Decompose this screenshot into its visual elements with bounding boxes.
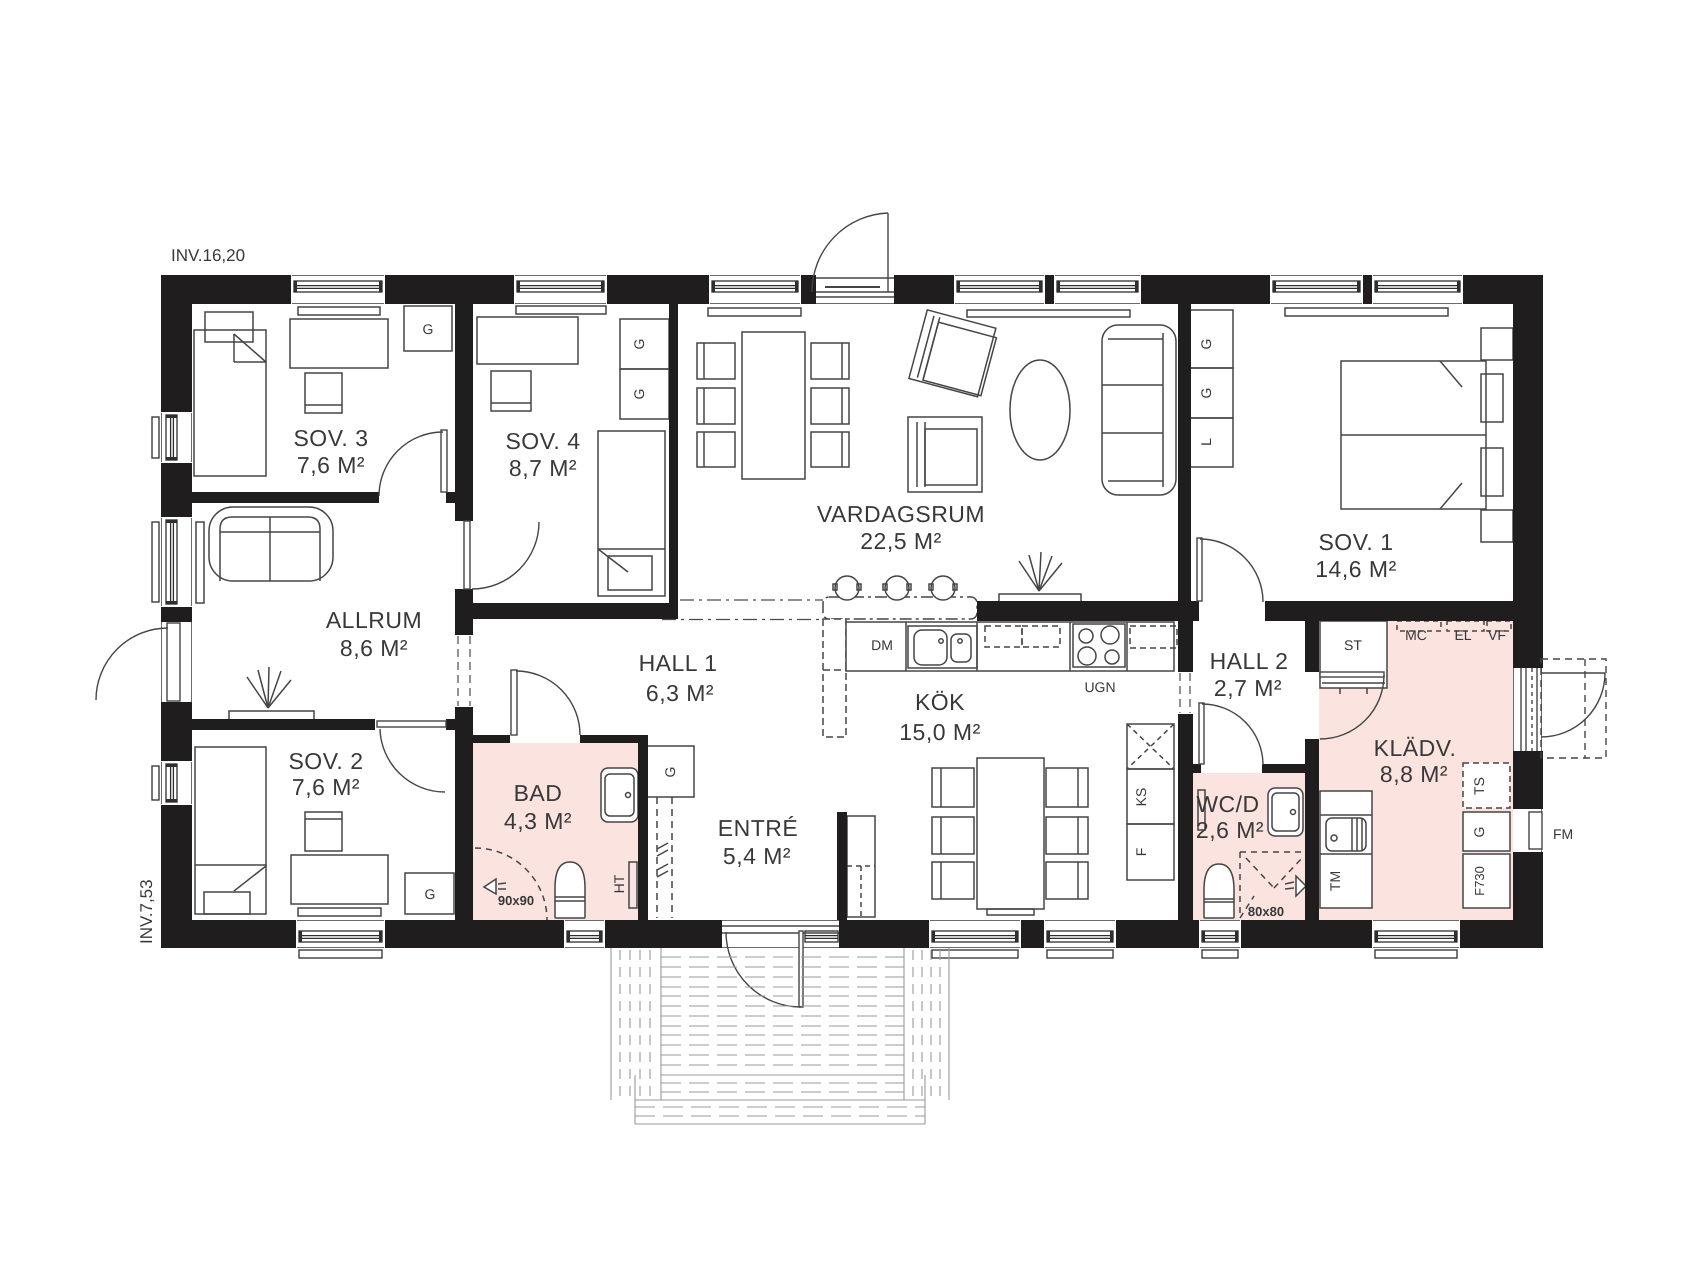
svg-text:8,7 M²: 8,7 M² (509, 455, 577, 481)
svg-text:8,8 M²: 8,8 M² (1380, 761, 1448, 787)
svg-text:MC: MC (1405, 627, 1427, 643)
svg-text:G: G (423, 321, 434, 337)
svg-text:22,5 M²: 22,5 M² (860, 528, 941, 554)
svg-text:INV.7,53: INV.7,53 (137, 879, 156, 944)
svg-text:14,6 M²: 14,6 M² (1315, 556, 1396, 582)
svg-text:HALL 1: HALL 1 (639, 650, 718, 676)
svg-text:KÖK: KÖK (915, 689, 965, 715)
svg-text:ENTRÉ: ENTRÉ (718, 815, 798, 841)
svg-text:G: G (1471, 827, 1487, 838)
svg-text:TM: TM (1327, 871, 1343, 891)
svg-text:SOV. 2: SOV. 2 (288, 748, 363, 774)
svg-text:G: G (631, 389, 647, 400)
svg-text:HALL 2: HALL 2 (1210, 648, 1289, 674)
svg-text:FM: FM (1553, 826, 1573, 842)
svg-text:KS: KS (1133, 788, 1149, 807)
svg-text:UGN: UGN (1084, 679, 1115, 695)
svg-text:90x90: 90x90 (498, 893, 534, 908)
svg-text:WC/D: WC/D (1196, 791, 1259, 817)
svg-text:ALLRUM: ALLRUM (326, 607, 422, 633)
svg-text:DM: DM (871, 637, 893, 653)
svg-text:SOV. 3: SOV. 3 (293, 425, 368, 451)
svg-text:BAD: BAD (514, 780, 563, 806)
svg-text:80x80: 80x80 (1248, 904, 1284, 919)
svg-text:G: G (662, 767, 678, 778)
svg-text:4,3 M²: 4,3 M² (504, 808, 572, 834)
svg-text:VF: VF (1488, 627, 1506, 643)
svg-text:F: F (1133, 848, 1149, 857)
svg-text:2,6 M²: 2,6 M² (1196, 817, 1264, 843)
svg-text:L: L (1198, 438, 1214, 446)
svg-text:7,6 M²: 7,6 M² (297, 452, 365, 478)
svg-text:F730: F730 (1472, 866, 1487, 896)
svg-text:G: G (425, 886, 436, 902)
svg-text:EL: EL (1454, 627, 1471, 643)
svg-text:G: G (1198, 339, 1214, 350)
svg-text:15,0 M²: 15,0 M² (899, 719, 980, 745)
svg-text:KLÄDV.: KLÄDV. (1374, 735, 1457, 761)
svg-text:G: G (1198, 388, 1214, 399)
svg-text:8,6 M²: 8,6 M² (340, 635, 408, 661)
svg-text:G: G (631, 339, 647, 350)
svg-text:7,6 M²: 7,6 M² (292, 774, 360, 800)
svg-text:VARDAGSRUM: VARDAGSRUM (817, 501, 985, 527)
svg-text:5,4 M²: 5,4 M² (723, 843, 791, 869)
svg-text:SOV. 4: SOV. 4 (505, 428, 580, 454)
svg-text:SOV. 1: SOV. 1 (1318, 529, 1393, 555)
svg-text:TS: TS (1471, 777, 1487, 795)
svg-text:2,7 M²: 2,7 M² (1214, 675, 1282, 701)
svg-text:INV.16,20: INV.16,20 (171, 246, 245, 265)
svg-text:ST: ST (1344, 637, 1362, 653)
svg-text:6,3 M²: 6,3 M² (646, 680, 714, 706)
svg-text:HT: HT (611, 874, 627, 893)
